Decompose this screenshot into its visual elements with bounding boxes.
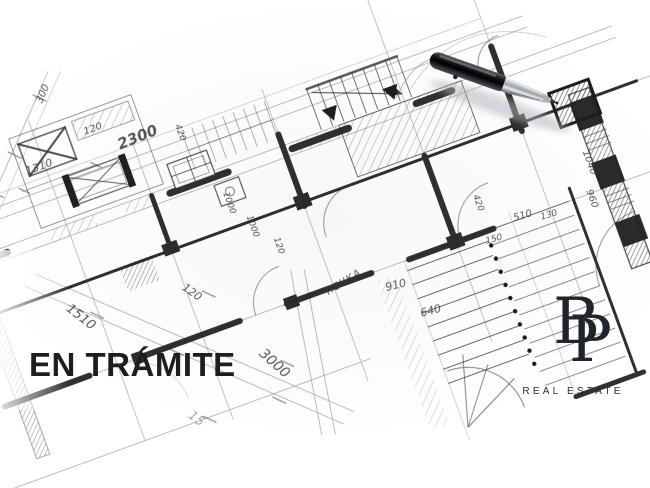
monogram-letter-p: P <box>569 308 612 372</box>
brand-wordmark: REAL ESTATE <box>512 386 634 397</box>
status-watermark: EN TRÁMITE <box>29 346 236 384</box>
brand-monogram: B P <box>512 294 634 384</box>
listing-image: 300 120 1310 2300 420 1000 1000 120 1040… <box>0 0 650 488</box>
brand-logo: B P REAL ESTATE <box>512 294 634 397</box>
pen-illustration <box>0 0 650 488</box>
